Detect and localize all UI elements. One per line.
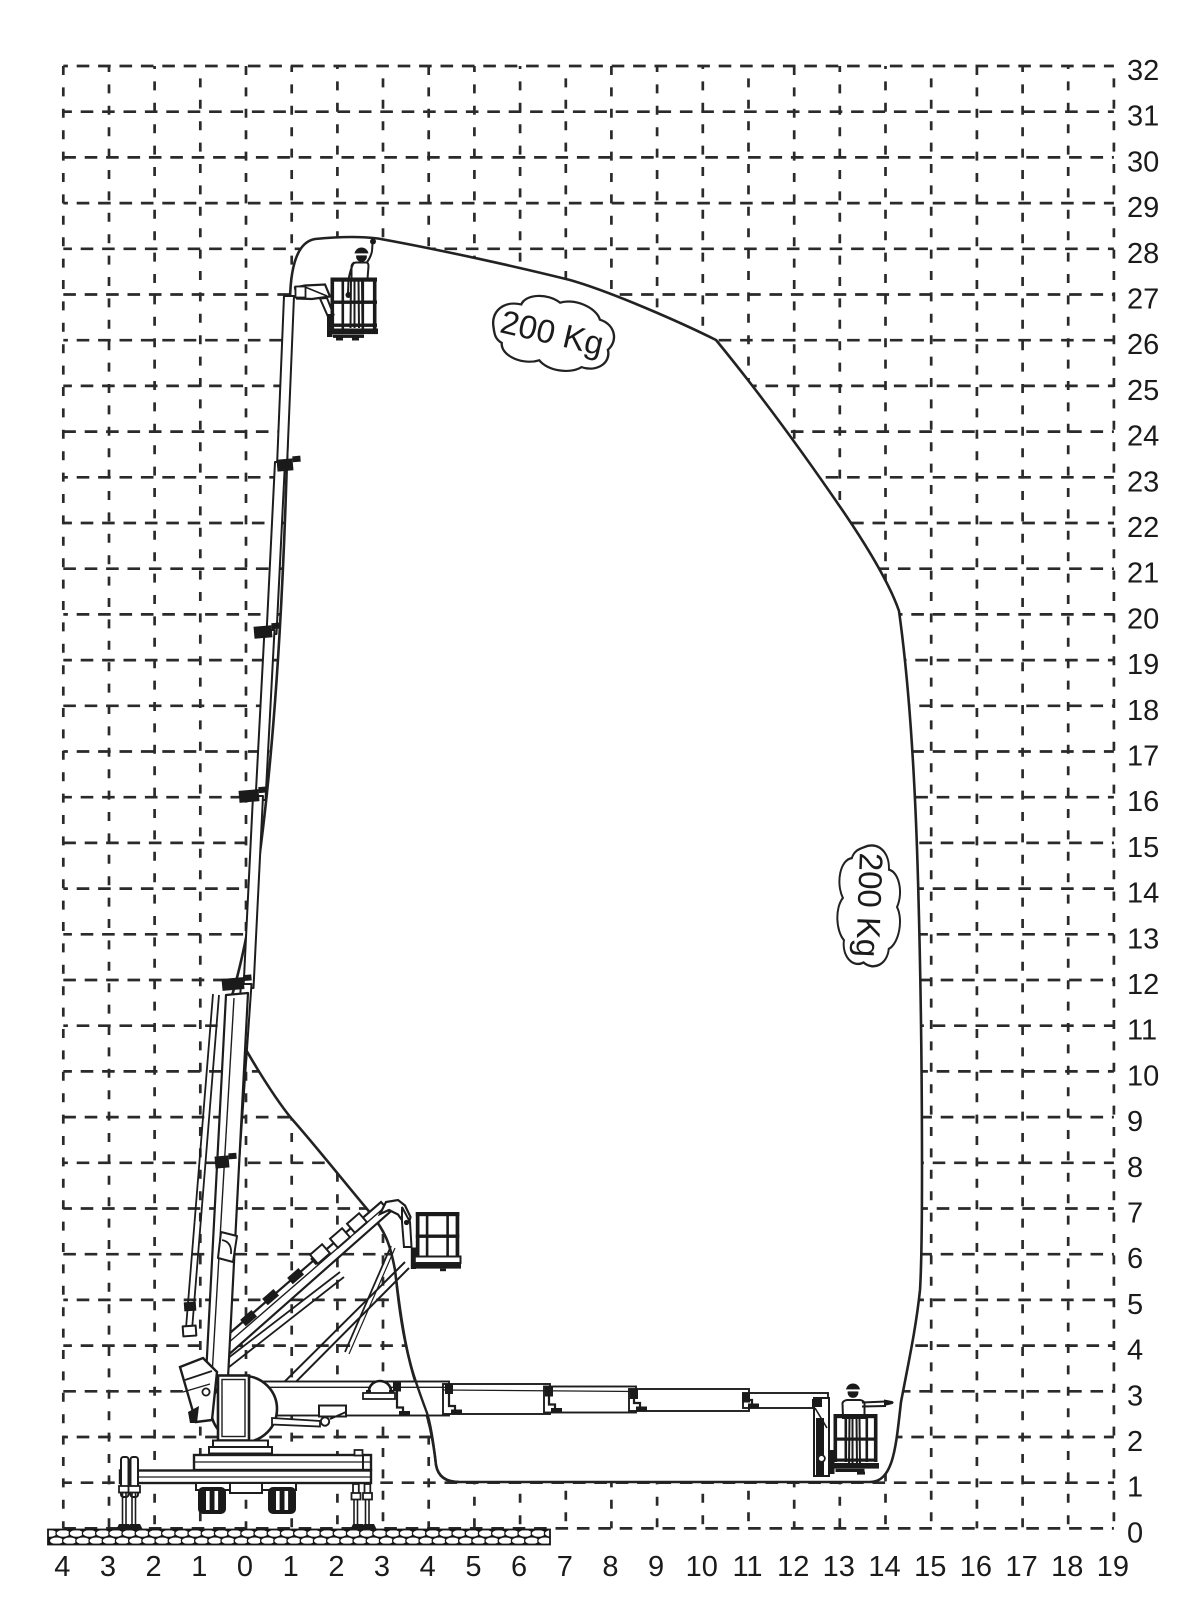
svg-text:5: 5 xyxy=(1127,1289,1143,1321)
svg-text:8: 8 xyxy=(1127,1152,1143,1184)
svg-text:32: 32 xyxy=(1127,55,1159,87)
svg-text:17: 17 xyxy=(1005,1551,1037,1583)
svg-text:31: 31 xyxy=(1127,101,1159,133)
svg-text:1: 1 xyxy=(191,1551,207,1583)
svg-text:2: 2 xyxy=(146,1551,162,1583)
svg-text:23: 23 xyxy=(1127,466,1159,498)
svg-text:5: 5 xyxy=(465,1551,481,1583)
svg-text:16: 16 xyxy=(960,1551,992,1583)
svg-text:19: 19 xyxy=(1127,649,1159,681)
svg-text:0: 0 xyxy=(237,1551,253,1583)
svg-text:12: 12 xyxy=(1127,969,1159,1001)
svg-text:1: 1 xyxy=(283,1551,299,1583)
svg-text:14: 14 xyxy=(1127,878,1159,910)
svg-text:17: 17 xyxy=(1127,741,1159,773)
svg-text:7: 7 xyxy=(1127,1198,1143,1230)
svg-text:6: 6 xyxy=(1127,1243,1143,1275)
svg-text:19: 19 xyxy=(1097,1551,1129,1583)
svg-text:14: 14 xyxy=(868,1551,900,1583)
svg-text:11: 11 xyxy=(732,1551,762,1583)
svg-text:30: 30 xyxy=(1127,146,1159,178)
svg-text:11: 11 xyxy=(1127,1015,1157,1047)
svg-text:15: 15 xyxy=(914,1551,946,1583)
svg-text:9: 9 xyxy=(1127,1106,1143,1138)
svg-text:16: 16 xyxy=(1127,786,1159,818)
svg-text:12: 12 xyxy=(777,1551,809,1583)
svg-text:28: 28 xyxy=(1127,238,1159,270)
svg-text:4: 4 xyxy=(54,1551,70,1583)
svg-text:25: 25 xyxy=(1127,375,1159,407)
svg-text:13: 13 xyxy=(823,1551,855,1583)
svg-text:10: 10 xyxy=(686,1551,718,1583)
svg-text:3: 3 xyxy=(1127,1380,1143,1412)
svg-text:10: 10 xyxy=(1127,1060,1159,1092)
svg-text:4: 4 xyxy=(420,1551,436,1583)
svg-text:2: 2 xyxy=(1127,1426,1143,1458)
svg-text:8: 8 xyxy=(602,1551,618,1583)
svg-text:26: 26 xyxy=(1127,329,1159,361)
svg-text:9: 9 xyxy=(648,1551,664,1583)
svg-text:15: 15 xyxy=(1127,832,1159,864)
svg-text:20: 20 xyxy=(1127,603,1159,635)
svg-text:24: 24 xyxy=(1127,421,1159,453)
svg-text:18: 18 xyxy=(1127,695,1159,727)
svg-text:3: 3 xyxy=(374,1551,390,1583)
svg-text:27: 27 xyxy=(1127,284,1159,316)
svg-text:1: 1 xyxy=(1127,1472,1143,1504)
svg-text:7: 7 xyxy=(557,1551,573,1583)
svg-text:13: 13 xyxy=(1127,923,1159,955)
svg-text:2: 2 xyxy=(328,1551,344,1583)
svg-text:6: 6 xyxy=(511,1551,527,1583)
svg-text:18: 18 xyxy=(1051,1551,1083,1583)
svg-text:200 Kg: 200 Kg xyxy=(849,852,890,958)
svg-text:0: 0 xyxy=(1127,1517,1143,1549)
svg-text:3: 3 xyxy=(100,1551,116,1583)
svg-text:21: 21 xyxy=(1127,558,1159,590)
svg-text:4: 4 xyxy=(1127,1335,1143,1367)
svg-text:29: 29 xyxy=(1127,192,1159,224)
svg-text:22: 22 xyxy=(1127,512,1159,544)
